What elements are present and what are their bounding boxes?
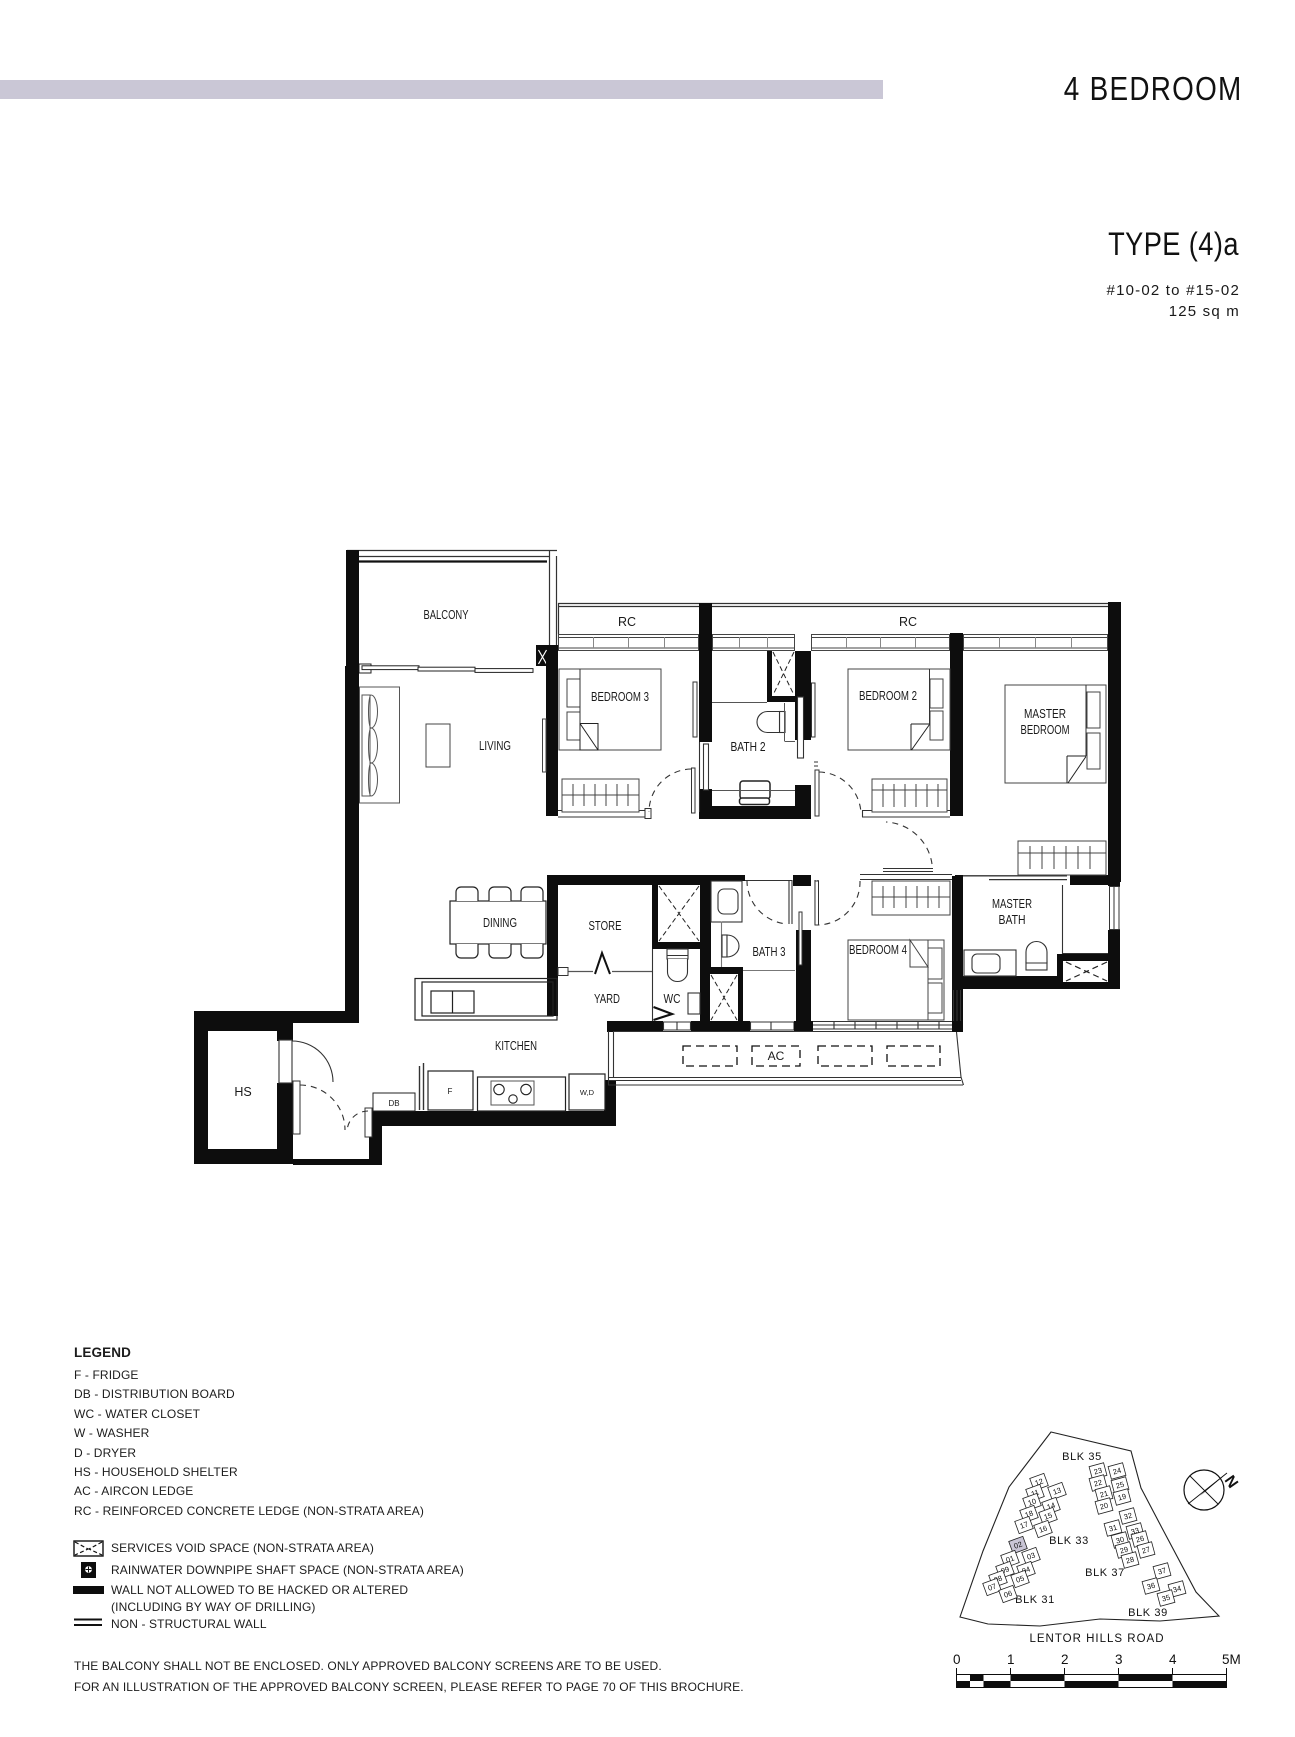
svg-text:0: 0 (953, 1652, 961, 1667)
svg-text:DB: DB (388, 1099, 399, 1108)
svg-text:BLK 33: BLK 33 (1049, 1535, 1089, 1547)
svg-text:DINING: DINING (483, 916, 517, 930)
svg-text:F: F (448, 1087, 453, 1096)
svg-text:MASTER: MASTER (1024, 707, 1066, 721)
svg-text:MASTER: MASTER (992, 897, 1032, 911)
svg-text:BEDROOM 4: BEDROOM 4 (849, 943, 907, 957)
svg-text:BLK 31: BLK 31 (1015, 1594, 1055, 1606)
svg-text:STORE: STORE (589, 919, 622, 933)
svg-text:HS: HS (234, 1085, 251, 1099)
svg-text:LIVING: LIVING (479, 739, 511, 753)
svg-text:BATH 2: BATH 2 (731, 740, 766, 754)
svg-text:BLK 39: BLK 39 (1128, 1607, 1168, 1619)
svg-text:LENTOR HILLS ROAD: LENTOR HILLS ROAD (1029, 1633, 1164, 1645)
svg-text:2: 2 (1061, 1652, 1069, 1667)
svg-text:BEDROOM 3: BEDROOM 3 (591, 690, 649, 704)
svg-text:YARD: YARD (594, 992, 620, 1006)
svg-text:RC: RC (618, 615, 636, 629)
svg-text:BEDROOM: BEDROOM (1021, 723, 1070, 737)
svg-text:AC: AC (768, 1049, 785, 1063)
svg-text:1: 1 (1007, 1652, 1015, 1667)
svg-text:5M: 5M (1222, 1652, 1241, 1667)
svg-text:4: 4 (1169, 1652, 1177, 1667)
svg-text:BALCONY: BALCONY (424, 608, 469, 622)
svg-text:BLK 35: BLK 35 (1062, 1451, 1102, 1463)
svg-text:RC: RC (899, 615, 917, 629)
svg-text:BLK 37: BLK 37 (1085, 1567, 1125, 1579)
svg-text:KITCHEN: KITCHEN (495, 1039, 537, 1053)
svg-text:W,D: W,D (580, 1088, 595, 1097)
svg-text:WC: WC (664, 992, 681, 1006)
svg-text:BATH 3: BATH 3 (753, 945, 786, 959)
svg-text:BEDROOM 2: BEDROOM 2 (859, 689, 917, 703)
svg-text:3: 3 (1115, 1652, 1123, 1667)
svg-text:BATH: BATH (999, 913, 1026, 927)
